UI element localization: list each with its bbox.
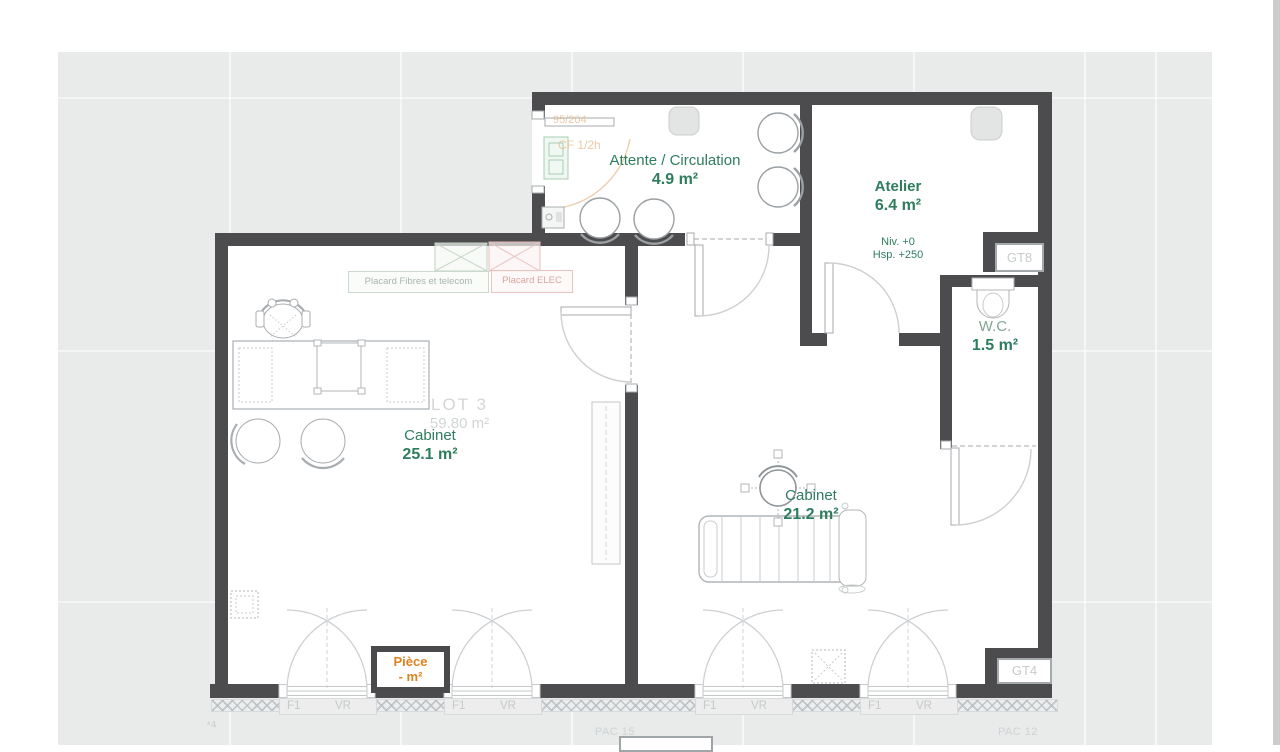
room-area: - m²: [377, 669, 444, 684]
door-opening-interior: [625, 305, 638, 385]
pac-label-right: PAC 12: [978, 726, 1058, 738]
room-level: Niv. +0: [840, 236, 956, 249]
window-tag-vr: VR: [916, 700, 932, 712]
room-label-cabinet-left: Cabinet 25.1 m²: [367, 426, 493, 464]
window-tag-box: F1 VR: [279, 698, 377, 715]
room-label-wc: W.C. 1.5 m²: [953, 317, 1037, 355]
window-tag-f1: F1: [287, 700, 300, 712]
window-tag-box: F1 VR: [695, 698, 793, 715]
sill-hatch: [375, 699, 446, 712]
room-name: Attente / Circulation: [555, 151, 795, 170]
sill-hatch: [211, 699, 281, 712]
room-area: 1.5 m²: [953, 336, 1037, 355]
window-tag-f1: F1: [868, 700, 881, 712]
wall-wc-left: [940, 275, 952, 449]
sill-hatch: [956, 699, 1058, 712]
wall-interior-a: [625, 246, 638, 305]
placard-fibres-label: Placard Fibres et telecom: [348, 271, 489, 293]
wall-left: [215, 246, 228, 698]
window-opening-1: [279, 684, 375, 698]
room-name: Cabinet: [748, 486, 874, 505]
wall-top: [532, 92, 1052, 105]
room-area: 4.9 m²: [555, 170, 795, 189]
window-tag-box: F1 VR: [444, 698, 542, 715]
sill-hatch: [791, 699, 862, 712]
wall-gt8-v: [983, 232, 995, 272]
grid-line: [1155, 52, 1157, 745]
window-opening-4: [860, 684, 956, 698]
wall-right: [1038, 92, 1052, 698]
room-label-attente: Attente / Circulation 4.9 m²: [555, 151, 795, 189]
wall-atelier-bottom-a: [800, 333, 827, 346]
wall-atelier-left: [800, 105, 812, 346]
wall-wc-top: [952, 275, 1038, 287]
room-name: W.C.: [953, 317, 1037, 336]
room-height: Hsp. +250: [840, 249, 956, 262]
niche-gt4: GT4: [997, 658, 1052, 684]
room-area: 21.2 m²: [748, 505, 874, 524]
window-opening-3: [695, 684, 791, 698]
sill-hatch: [540, 699, 697, 712]
room-area: 6.4 m²: [840, 196, 956, 215]
lot-name: LOT 3: [382, 395, 537, 415]
plan-note: *4: [206, 719, 217, 731]
fire-door-ref: 95/204: [553, 114, 587, 126]
room-name: Atelier: [840, 177, 956, 196]
wall-upper-left-a: [532, 92, 545, 119]
room-label-cabinet-right: Cabinet 21.2 m²: [748, 486, 874, 524]
window-tag-f1: F1: [703, 700, 716, 712]
grid-line: [1084, 52, 1086, 745]
window-tag-vr: VR: [500, 700, 516, 712]
window-opening-2: [444, 684, 540, 698]
niche-gt8: GT8: [995, 243, 1044, 272]
floorplan-page: F1 VR F1 VR F1 VR F1 VR PAC 15 PAC 12 *4…: [0, 0, 1280, 745]
fire-door-rating: CF 1/2h: [558, 138, 601, 152]
room-label-atelier: Atelier 6.4 m²: [840, 177, 956, 215]
window-tag-box: F1 VR: [860, 698, 958, 715]
wall-gt4-h: [985, 648, 1052, 658]
window-tag-vr: VR: [335, 700, 351, 712]
room-note-atelier: Niv. +0 Hsp. +250: [840, 236, 956, 262]
room-label-piece: Pièce - m²: [371, 646, 450, 693]
door-opening-mid: [694, 233, 773, 246]
room-name: Pièce: [377, 654, 444, 669]
building-interior-upper: [532, 105, 1038, 684]
room-name: Cabinet: [367, 426, 493, 445]
wall-mid-a: [215, 233, 685, 246]
window-tag-vr: VR: [751, 700, 767, 712]
cutoff-panel: [619, 736, 713, 752]
room-area: 25.1 m²: [367, 445, 493, 464]
door-opening-entry: [532, 119, 545, 186]
placard-elec-label: Placard ELEC: [491, 270, 573, 293]
wall-interior-b: [625, 385, 638, 684]
window-tag-f1: F1: [452, 700, 465, 712]
scrollbar[interactable]: [1273, 0, 1280, 745]
